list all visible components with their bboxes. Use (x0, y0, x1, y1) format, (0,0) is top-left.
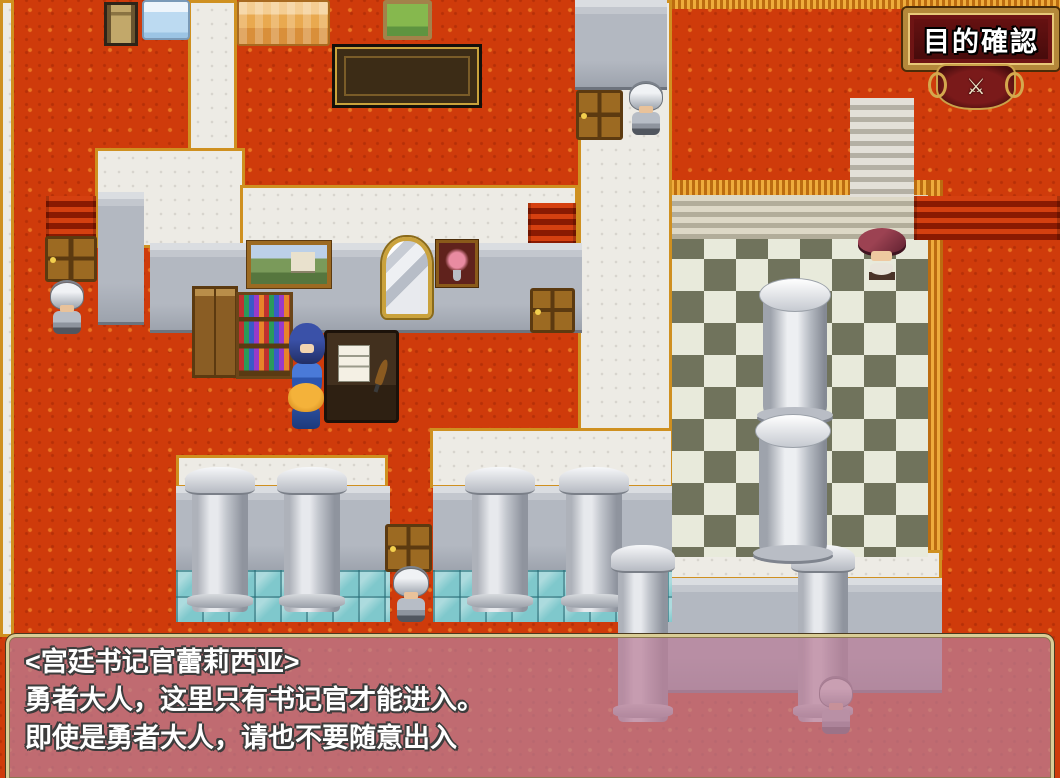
red-stairs-west (46, 196, 96, 240)
noble-with-red-hat[interactable] (858, 228, 906, 280)
red-stairs-center (528, 203, 576, 243)
tan-chair (104, 2, 138, 46)
guard-west[interactable] (48, 282, 86, 334)
crest-glyph: ⚔ (966, 74, 986, 100)
hero-hair (288, 383, 325, 412)
wall-mirror (382, 237, 432, 318)
wooden-cabinet (192, 286, 238, 378)
objective-confirm-button[interactable]: 目的確認 (903, 8, 1059, 70)
marble-column (566, 470, 622, 612)
red-stairs-east (914, 196, 1060, 240)
stone-pillar (763, 284, 827, 420)
guard-south[interactable] (391, 568, 431, 622)
royal-crest-icon: ⚔ (936, 64, 1016, 110)
dialogue-text-line-2: 即使是勇者大人，请也不要随意出入 (25, 719, 1035, 757)
north-door[interactable] (576, 90, 623, 140)
orange-bed (237, 0, 330, 46)
castle-painting (247, 241, 331, 288)
south-door[interactable] (385, 524, 432, 572)
west-door[interactable] (45, 236, 97, 282)
guard-face (404, 592, 418, 600)
green-chair (383, 0, 432, 40)
guard-face (639, 106, 653, 113)
marble-column (192, 470, 248, 612)
rose-painting (436, 240, 478, 287)
marble-column (472, 470, 528, 612)
stone-pillar (759, 420, 827, 558)
dialogue-speaker-line: <宫廷书记官蕾莉西亚> (25, 643, 1035, 681)
long-table (332, 44, 482, 108)
dialogue-text-line-1: 勇者大人，这里只有书记官才能进入。 (25, 681, 1035, 719)
wall-left-edge (0, 0, 14, 637)
dialogue-window[interactable]: <宫廷书记官蕾莉西亚> 勇者大人，这里只有书记官才能进入。 即使是勇者大人，请也… (6, 634, 1054, 778)
blue-bed (142, 0, 190, 40)
scribe-face (300, 344, 314, 354)
writing-desk[interactable] (324, 330, 399, 423)
center-door[interactable] (530, 288, 575, 333)
wall-face-west (98, 192, 144, 325)
guard-north[interactable] (627, 83, 665, 135)
desk-paper (338, 345, 370, 382)
desk-quill-icon (375, 358, 391, 385)
gray-steps (850, 98, 914, 197)
objective-confirm-label: 目的確認 (923, 20, 1039, 59)
noble-face (871, 251, 891, 261)
marble-column (284, 470, 340, 612)
game-viewport: 目的確認 ⚔ <宫廷书记官蕾莉西亚> 勇者大人，这里只有书记官才能进入。 即使是… (0, 0, 1060, 778)
guard-face (60, 305, 74, 312)
noble-beard (870, 263, 892, 274)
wall-face-north (575, 0, 667, 90)
bookshelf (236, 292, 293, 379)
hero[interactable] (286, 383, 326, 429)
